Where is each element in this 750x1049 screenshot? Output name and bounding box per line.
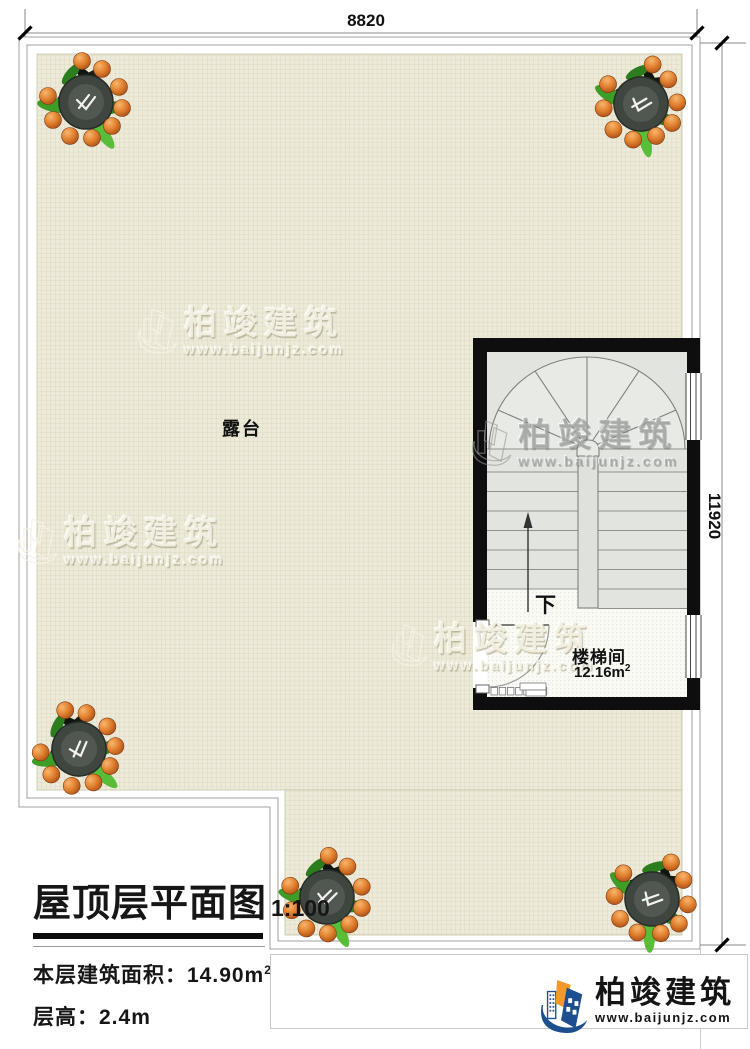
title-underline — [33, 933, 263, 939]
brand-url: www.baijunjz.com — [595, 1010, 735, 1025]
drawing-title: 屋顶层平面图 — [33, 883, 267, 925]
brand-logo: 柏竣建筑 www.baijunjz.com — [536, 976, 735, 1034]
stair-area-sup: 2 — [625, 663, 631, 674]
floor-plan-sheet: 柏竣建筑 www.baijunjz.com 柏竣建筑 www.baijunjz.… — [0, 0, 750, 1049]
floor-area-label: 本层建筑面积： — [33, 964, 187, 987]
dimension-width: 8820 — [316, 11, 416, 31]
stair-area-label: 12.16m2 — [574, 663, 630, 681]
title-underline-thin — [33, 946, 265, 947]
dimension-height: 11920 — [704, 466, 724, 566]
stair-landing — [487, 589, 578, 697]
stair-window — [686, 615, 702, 678]
floor-area-value: 14.90m — [187, 964, 264, 987]
brand-name: 柏竣建筑 — [595, 976, 735, 1010]
terrace-label: 露台 — [222, 415, 262, 441]
drawing-scale: 1:100 — [271, 895, 330, 921]
stair-stringer — [578, 449, 598, 608]
down-label: 下 — [535, 589, 556, 619]
stair-newel — [577, 440, 599, 456]
stair-window — [686, 373, 702, 440]
brand-logo-icon — [536, 976, 588, 1034]
stair-area-value: 12.16m — [574, 664, 625, 681]
